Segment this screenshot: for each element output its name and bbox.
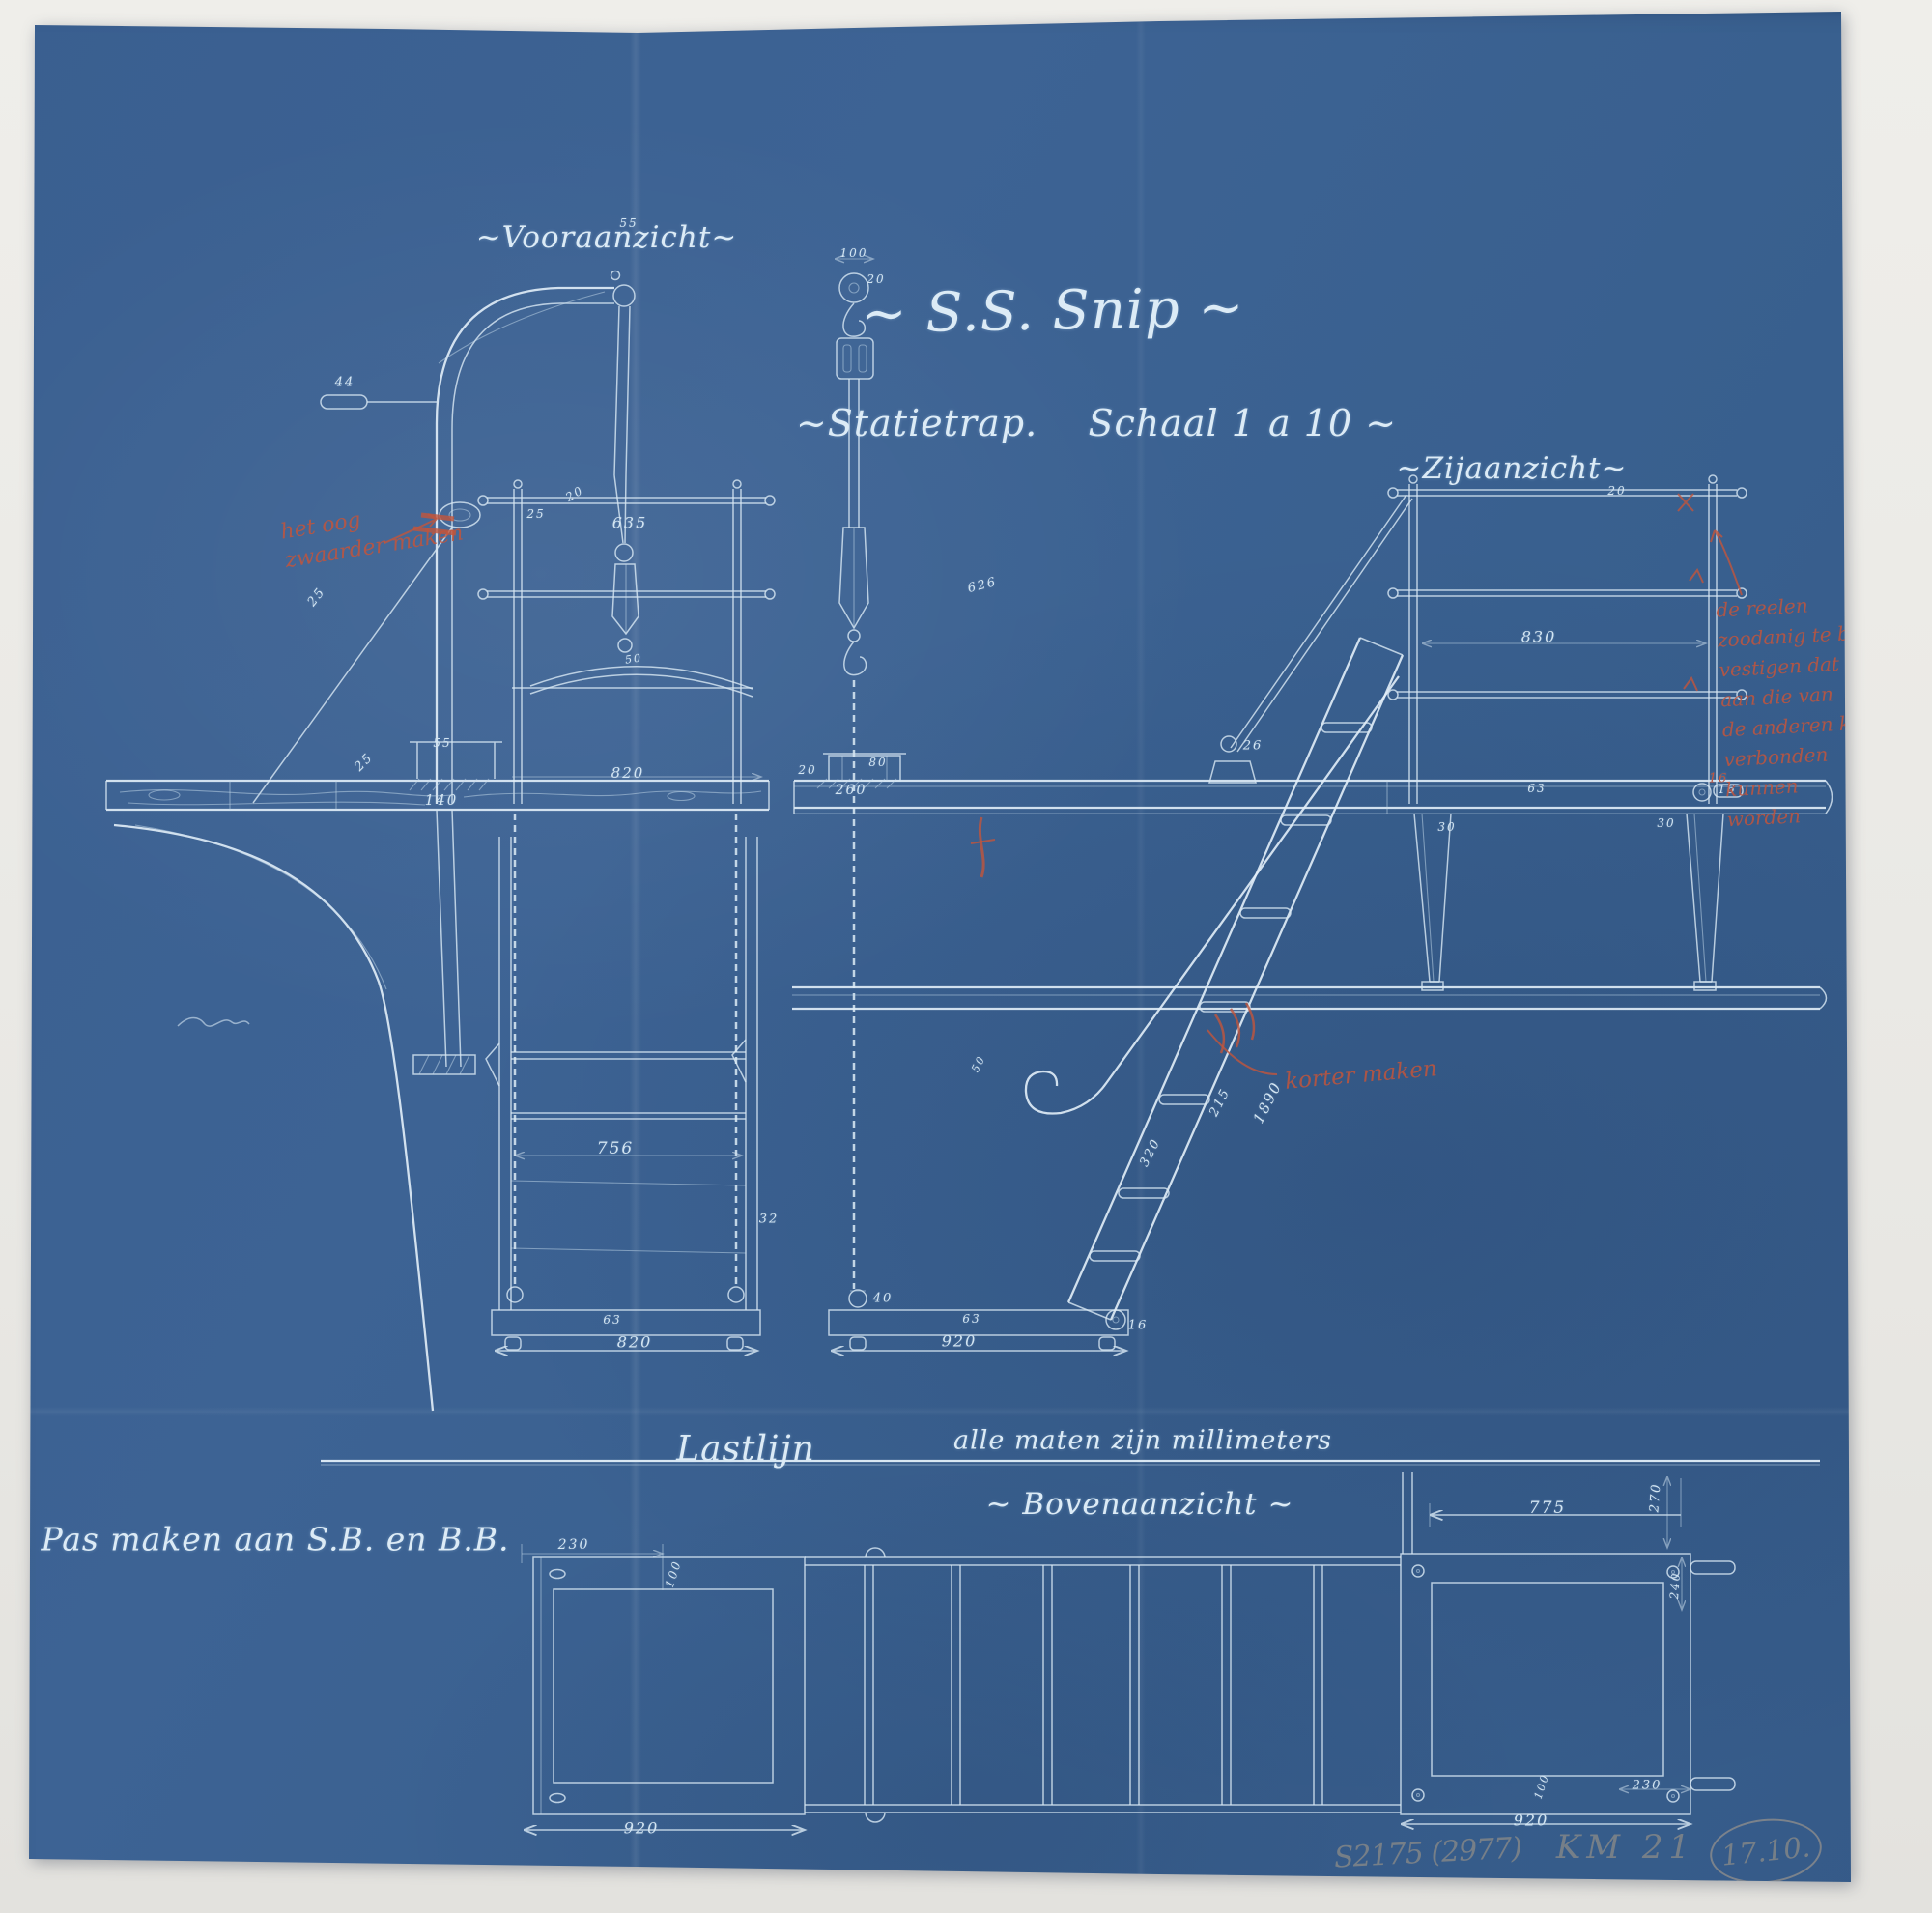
blueprint-sheet: .w1{stroke:#d7e7f3;stroke-width:1.5;fill… bbox=[0, 0, 1932, 1913]
pencil-code: KM 21 bbox=[1556, 1828, 1695, 1867]
waterline-label: Lastlijn bbox=[676, 1430, 815, 1470]
dimension-label: 920 bbox=[1514, 1812, 1549, 1830]
dimension-label: 25 bbox=[526, 507, 545, 521]
top-view-drawing bbox=[522, 1472, 1735, 1830]
side-view-label: ~Zijaanzicht~ bbox=[1397, 451, 1628, 486]
dimension-label: 20 bbox=[798, 763, 816, 777]
dimension-label: 775 bbox=[1529, 1499, 1566, 1518]
dimension-label: 820 bbox=[611, 764, 645, 782]
side-view-drawing bbox=[1387, 475, 1747, 990]
blueprint-sheet-wrap: .w1{stroke:#d7e7f3;stroke-width:1.5;fill… bbox=[0, 0, 1932, 1913]
dimension-label: 270 bbox=[1647, 1482, 1663, 1513]
dimension-label: 26 bbox=[1243, 739, 1264, 754]
dimension-label: 20 bbox=[1607, 484, 1626, 498]
dimension-label: 30 bbox=[1657, 816, 1675, 830]
dimension-label: 80 bbox=[868, 756, 887, 769]
units-note: alle maten zijn millimeters bbox=[953, 1426, 1332, 1456]
paper-scratch bbox=[178, 1018, 249, 1027]
front-view-label: ~Vooraanzicht~ bbox=[476, 220, 738, 255]
fit-note: Pas maken aan S.B. en B.B. bbox=[41, 1521, 509, 1558]
dimension-label: 40 bbox=[873, 1292, 894, 1306]
front-view-drawing bbox=[106, 271, 775, 1412]
dimension-label: 16 bbox=[1128, 1319, 1149, 1333]
pencil-circled-number: 17.10. bbox=[1719, 1830, 1811, 1871]
waterline-drawing bbox=[321, 1461, 1820, 1465]
dimension-label: 55 bbox=[433, 736, 451, 750]
dimension-label: 635 bbox=[612, 514, 648, 532]
dimension-label: 830 bbox=[1521, 628, 1557, 646]
dimension-label: 260 bbox=[836, 783, 867, 798]
dimension-label: 63 bbox=[962, 1312, 980, 1326]
dimension-label: 63 bbox=[1527, 782, 1546, 795]
page-title: ~ S.S. Snip ~ bbox=[861, 276, 1245, 346]
drawing-subtitle: ~Statietrap. Schaal 1 a 10 ~ bbox=[796, 402, 1397, 444]
dimension-label: 240 bbox=[1667, 1571, 1683, 1600]
dimension-label: 30 bbox=[1437, 820, 1456, 834]
red-note-right: de reelenzoodanig te be-vestigen dat zij… bbox=[1716, 587, 1889, 835]
dimension-label: 32 bbox=[759, 1213, 780, 1227]
dimension-label: 50 bbox=[624, 651, 643, 666]
dimension-label: 820 bbox=[617, 1333, 653, 1352]
dimension-label: 140 bbox=[425, 791, 459, 809]
dimension-label: 20 bbox=[867, 272, 885, 286]
scan-background: { "sheet": { "title": "~ S.S. Snip ~", "… bbox=[0, 0, 1932, 1913]
top-view-label: ~ Bovenaanzicht ~ bbox=[986, 1487, 1294, 1522]
dimension-label: 230 bbox=[558, 1537, 590, 1553]
dimension-label: 100 bbox=[840, 246, 868, 260]
dimension-label: 55 bbox=[619, 216, 638, 230]
dimension-label: 44 bbox=[335, 376, 355, 390]
dimension-label: 756 bbox=[597, 1139, 634, 1158]
dimension-label: 920 bbox=[942, 1332, 978, 1351]
dimension-label: 920 bbox=[624, 1819, 660, 1838]
dimension-label: 63 bbox=[603, 1313, 621, 1327]
dimension-label: 230 bbox=[1633, 1779, 1662, 1793]
